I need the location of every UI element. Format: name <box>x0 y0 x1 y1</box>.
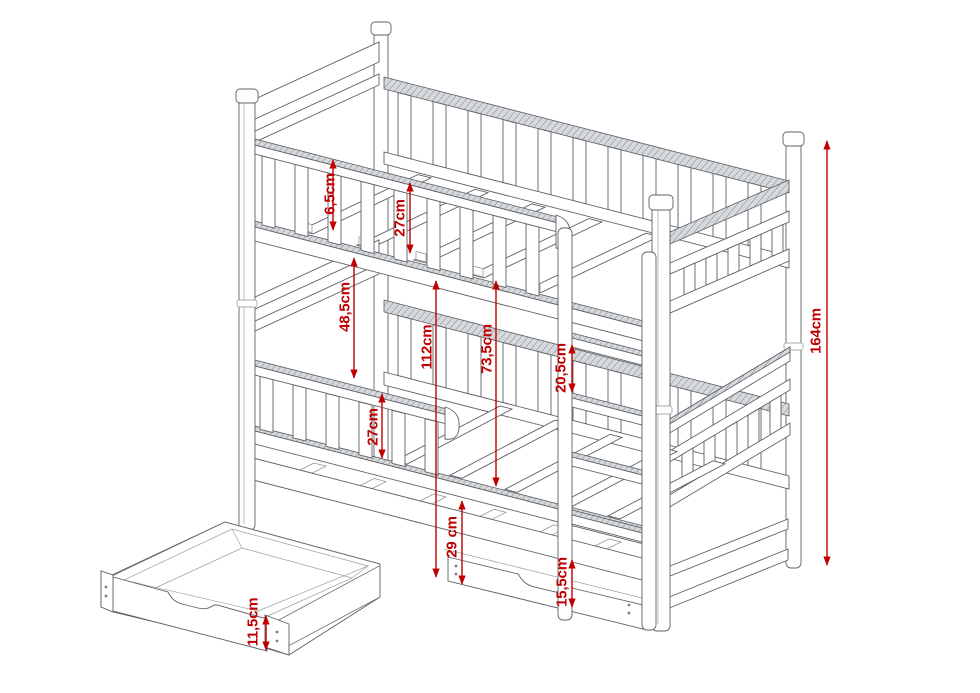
dimension-bunk-spacing: 48,5cm <box>337 258 355 378</box>
bunk-bed-drawing <box>101 22 804 655</box>
bunk-bed-diagram: 6,5cm27cm48,5cm112cm73,5cm20,5cm164cm27c… <box>0 0 980 693</box>
dimension-total-height: 164cm <box>808 141 828 565</box>
dimension-label: 73,5cm <box>479 324 496 374</box>
dimension-drawer-closed-height: 15,5cm <box>554 557 573 607</box>
technical-drawing-canvas: 6,5cm27cm48,5cm112cm73,5cm20,5cm164cm27c… <box>0 0 980 693</box>
storage-drawer-open <box>101 522 380 655</box>
dimension-label: 15,5cm <box>554 557 571 607</box>
dimension-label: 164cm <box>808 308 825 354</box>
dimension-label: 29 cm <box>444 516 461 558</box>
front-left-post <box>236 89 258 530</box>
dimension-rung-spacing: 20,5cm <box>553 343 573 393</box>
dimension-label: 6,5cm <box>322 173 339 215</box>
dimension-label: 11,5cm <box>245 598 262 647</box>
dimension-label: 27cm <box>392 199 409 237</box>
dimension-label: 112cm <box>419 325 436 370</box>
dimension-label: 48,5cm <box>337 282 354 332</box>
dimension-label: 20,5cm <box>553 343 570 393</box>
dimension-label: 27cm <box>365 408 382 446</box>
